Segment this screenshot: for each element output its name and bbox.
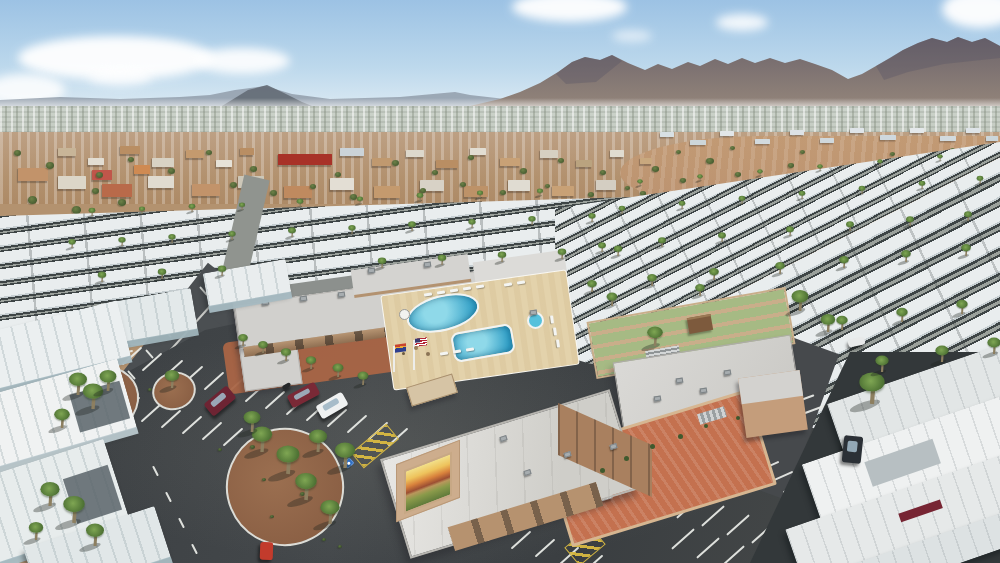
potted-plant	[678, 434, 683, 439]
palm-crown	[839, 256, 849, 263]
palm-crown	[697, 174, 702, 178]
palm-crown	[295, 473, 317, 489]
house-block	[508, 180, 530, 191]
tree	[230, 182, 237, 188]
desert-tree	[788, 163, 794, 168]
palm-crown	[69, 373, 87, 387]
house-block	[120, 146, 140, 154]
palm-crown	[238, 334, 248, 341]
tree	[168, 168, 175, 174]
house-block	[610, 150, 624, 157]
tree	[46, 162, 54, 169]
palm-crown	[86, 524, 104, 538]
house-block	[470, 148, 486, 155]
house-block	[690, 140, 706, 145]
palm-crown	[168, 234, 175, 239]
house-block	[660, 132, 674, 137]
palm-crown	[961, 244, 971, 251]
palm-crown	[244, 411, 261, 424]
palm-crown	[637, 179, 642, 183]
palm-crown	[348, 225, 355, 230]
house-block	[240, 148, 254, 155]
palm-crown	[68, 239, 75, 244]
palm-crown	[718, 232, 726, 238]
vehicle-windshield	[847, 440, 859, 452]
palm-crown	[619, 206, 626, 211]
palm-crown	[438, 255, 446, 261]
house-block	[790, 130, 804, 135]
palm-crown	[29, 522, 43, 533]
house-block	[216, 160, 232, 167]
palm-crown	[821, 314, 835, 325]
house-block	[940, 136, 956, 141]
palm-crown	[297, 199, 304, 204]
palm-crown	[498, 252, 506, 258]
house-block	[18, 168, 48, 181]
palm-crown	[239, 203, 245, 208]
palm-crown	[792, 290, 809, 303]
potted-plant	[736, 416, 740, 420]
desert-tree	[676, 150, 681, 154]
house-block	[576, 160, 592, 167]
palm-crown	[100, 370, 117, 383]
house-block	[500, 158, 520, 166]
palm-crown	[647, 274, 657, 281]
house-block	[88, 158, 104, 165]
tree	[520, 168, 527, 174]
desert-tree	[730, 146, 735, 150]
palm-crown	[614, 246, 622, 252]
palm-crown	[956, 300, 967, 309]
potted-plant	[402, 352, 405, 355]
palm-crown	[468, 219, 475, 224]
palm-crown	[537, 189, 543, 194]
palm-crown	[40, 482, 59, 496]
tree	[350, 194, 357, 200]
house-block	[58, 148, 76, 156]
palm-crown	[98, 272, 106, 278]
palm-crown	[658, 237, 666, 243]
roof-detail	[898, 499, 943, 522]
palm-crown	[799, 191, 806, 196]
satellite-dish	[399, 309, 410, 320]
house-block	[540, 150, 558, 158]
tree	[14, 150, 21, 156]
ac-unit	[338, 292, 346, 298]
palm-crown	[139, 207, 145, 212]
palm-crown	[335, 443, 355, 458]
potted-plant	[600, 468, 605, 473]
desert-tree	[890, 152, 895, 156]
house-block	[58, 176, 86, 189]
palm-crown	[877, 159, 882, 163]
house-block	[192, 184, 220, 196]
palm-crown	[964, 211, 972, 217]
palm-crown	[588, 213, 595, 218]
palm-crown	[528, 216, 535, 221]
palm-crown	[901, 250, 911, 257]
palm-crown	[358, 372, 369, 380]
palm-crown	[598, 242, 606, 248]
palm-crown	[309, 430, 327, 444]
vehicle	[842, 435, 864, 464]
house-block	[720, 131, 734, 136]
palm-crown	[906, 216, 914, 222]
desert-tree	[680, 178, 686, 183]
palm-crown	[306, 356, 316, 364]
palm-crown	[817, 164, 822, 168]
aerial-photo-mobile-home-park	[0, 0, 1000, 563]
palm-crown	[695, 284, 705, 291]
house-block	[374, 186, 400, 198]
cloud	[942, 0, 1000, 28]
ac-unit	[300, 296, 308, 302]
palm-crown	[320, 500, 339, 514]
bush	[250, 445, 255, 449]
house-block	[986, 136, 998, 141]
palm-crown	[937, 154, 942, 158]
house-block	[755, 139, 770, 144]
house-block	[330, 178, 354, 190]
palm-crown	[158, 269, 166, 275]
house-block	[640, 158, 652, 164]
tree	[72, 206, 81, 214]
palm-crown	[477, 191, 483, 196]
cloud	[512, 0, 627, 22]
potted-plant	[650, 444, 655, 449]
tan-outbuilding	[738, 370, 808, 438]
palm-crown	[846, 221, 854, 227]
house-block	[102, 184, 132, 197]
palm-crown	[277, 446, 300, 463]
house-block	[148, 176, 174, 188]
palm-crown	[89, 208, 96, 213]
house-block	[186, 150, 204, 158]
potted-plant	[426, 352, 430, 356]
house-block	[340, 148, 364, 156]
palm-crown	[587, 280, 597, 287]
house-block	[406, 150, 424, 157]
home-shadow-side	[39, 556, 172, 563]
tree	[96, 172, 103, 178]
palm-crown	[607, 293, 618, 301]
palm-crown	[757, 169, 762, 173]
palm-crown	[647, 327, 663, 339]
palm-crown	[333, 364, 344, 372]
ac-unit	[530, 310, 538, 316]
house-block	[820, 138, 834, 143]
desert-tree	[800, 150, 805, 154]
palm-crown	[836, 316, 847, 325]
house-block	[372, 158, 392, 166]
potted-plant	[414, 346, 418, 350]
vehicle	[260, 542, 274, 560]
palm-crown	[189, 204, 196, 209]
palm-crown	[558, 249, 566, 255]
desert-tree	[652, 166, 659, 172]
palm-crown	[739, 196, 746, 201]
palm-crown	[218, 266, 226, 272]
potted-plant	[624, 456, 629, 461]
palm-crown	[679, 201, 686, 206]
house-block	[966, 128, 980, 133]
house-block	[278, 154, 332, 165]
tree	[92, 188, 99, 194]
house-block	[880, 135, 896, 140]
palm-crown	[896, 308, 907, 317]
palm-crown	[288, 227, 296, 233]
desert-tree	[735, 172, 741, 177]
palm-crown	[378, 258, 386, 264]
house-block	[284, 186, 312, 198]
house-block	[152, 158, 174, 167]
palm-crown	[63, 496, 85, 512]
palm-crown	[258, 341, 268, 348]
palm-crown	[408, 221, 416, 227]
palm-crown	[165, 370, 179, 381]
palm-crown	[977, 176, 984, 181]
potted-plant	[704, 424, 708, 428]
palm-crown	[709, 268, 719, 275]
palm-crown	[54, 409, 70, 421]
palm-crown	[775, 262, 785, 269]
palm-crown	[935, 346, 948, 356]
palm-crown	[786, 226, 794, 232]
palm-crown	[859, 186, 866, 191]
tree	[118, 199, 126, 206]
house-block	[436, 160, 458, 168]
palm-crown	[919, 181, 926, 186]
house-block	[134, 165, 150, 174]
ac-unit	[424, 262, 432, 268]
house-block	[464, 186, 488, 197]
house-block	[596, 180, 616, 190]
house-block	[910, 128, 924, 133]
tree	[270, 190, 277, 196]
palm-crown	[228, 231, 235, 236]
palm-crown	[875, 356, 888, 366]
tree	[392, 160, 399, 166]
palm-crown	[118, 237, 125, 242]
house-block	[850, 128, 864, 133]
palm-crown	[417, 193, 424, 198]
tree	[28, 196, 37, 204]
palm-crown	[987, 338, 1000, 348]
palm-crown	[357, 197, 363, 202]
tree	[250, 166, 257, 172]
house-block	[552, 186, 574, 196]
palm-crown	[281, 348, 291, 356]
